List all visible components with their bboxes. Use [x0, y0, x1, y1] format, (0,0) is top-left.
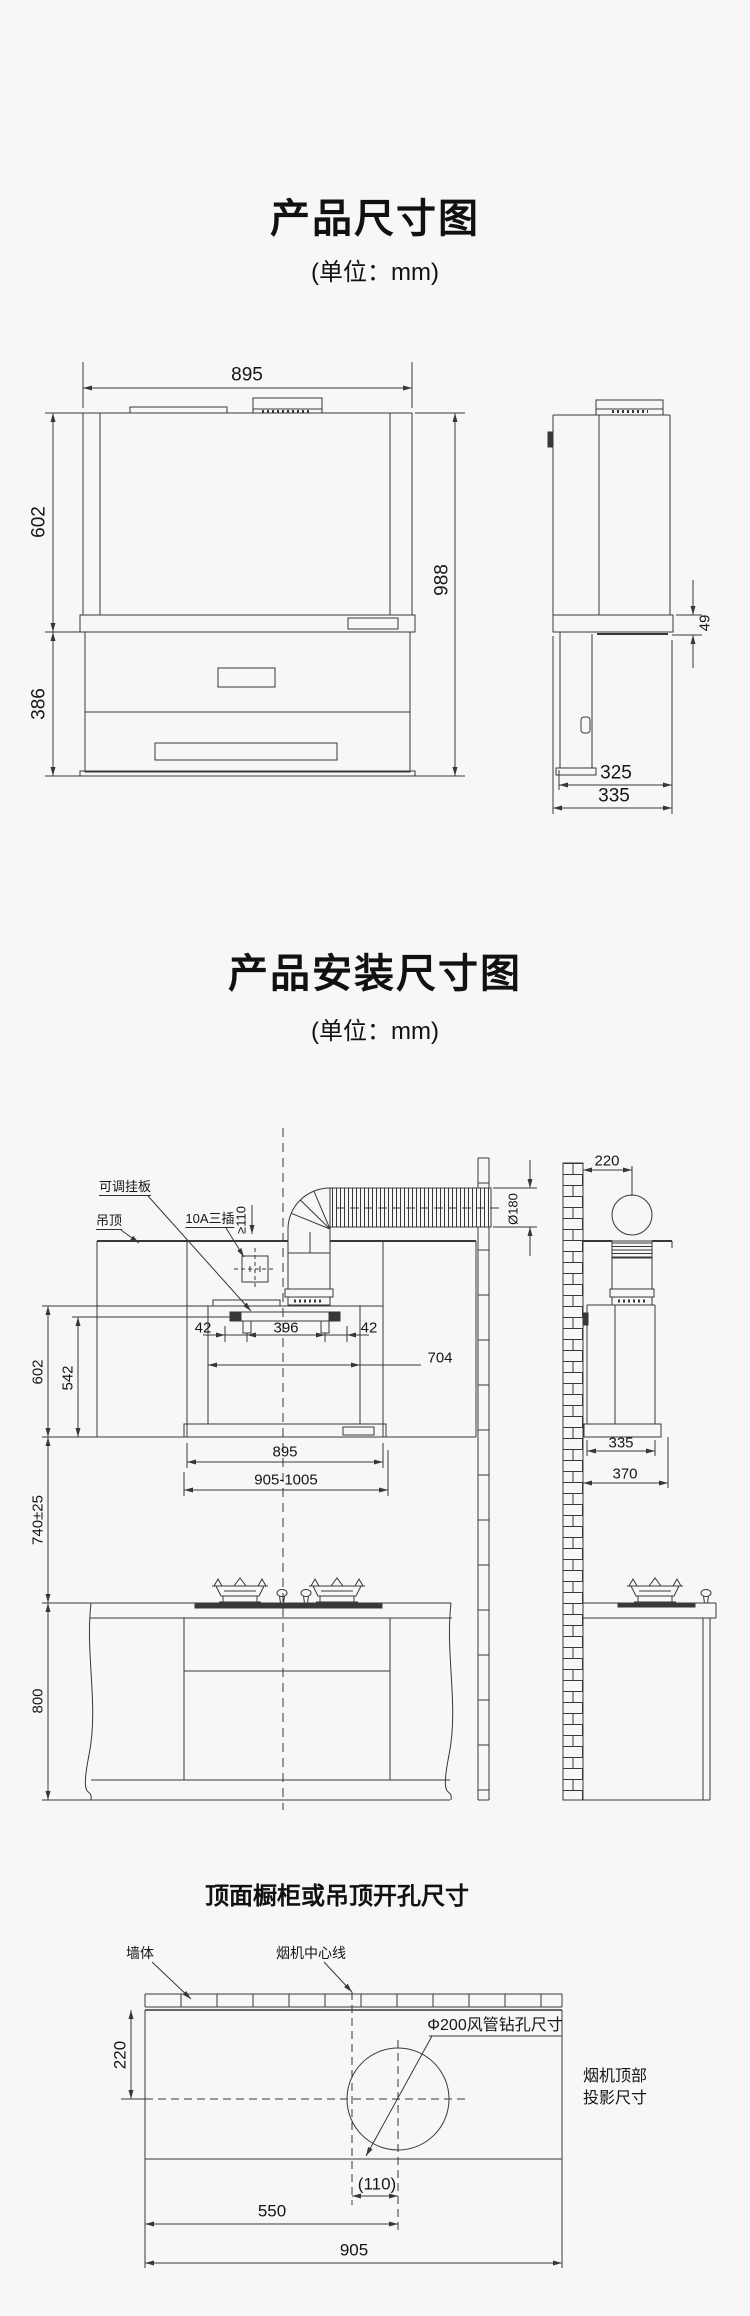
section1-title: 产品尺寸图 [0, 186, 750, 244]
dim-depth-335-install: 335 [608, 1436, 633, 1451]
dim-wall-front-370: 370 [612, 1467, 637, 1482]
s2-side-view [563, 1163, 716, 1800]
dim-wall-hole-220: 220 [112, 2041, 129, 2069]
dim-margin-right-42: 42 [361, 1321, 378, 1336]
dim-clearance-110: ≥110 [235, 1206, 248, 1234]
dim-span-396: 396 [273, 1321, 298, 1336]
section2-title: 产品安装尺寸图 [0, 941, 750, 999]
callout-adjustable-plate: 可调挂板 [99, 1180, 151, 1196]
dim-depth-325: 325 [600, 764, 632, 783]
dim-hood-height-602: 602 [30, 506, 49, 538]
s1-front-view [45, 362, 465, 776]
s2-front-view [42, 1128, 537, 1810]
section3-title: 顶面橱柜或吊顶开孔尺寸 [107, 1876, 567, 1911]
dim-offset-110: (110) [358, 2176, 396, 2193]
dim-plate-542: 542 [61, 1365, 76, 1390]
dim-margin-left-42: 42 [195, 1321, 212, 1336]
callout-drill-hole: Φ200风管钻孔尺寸 [427, 2018, 562, 2034]
dim-total-height-988: 988 [433, 564, 452, 596]
dim-duct-diameter-180: Ø180 [507, 1193, 520, 1225]
s1-side-view [548, 400, 702, 814]
callout-socket: 10A三插 [185, 1212, 234, 1228]
section1-unit: (单位：mm) [0, 252, 750, 287]
callout-ceiling: 吊顶 [96, 1214, 122, 1230]
callout-projection-line1: 烟机顶部 [583, 2066, 647, 2088]
dim-opening-905-1005: 905-1005 [254, 1473, 317, 1488]
technical-line-art [0, 0, 750, 2316]
dim-left-hole-550: 550 [258, 2203, 286, 2220]
callout-wall: 墙体 [126, 1946, 154, 1960]
dim-depth-335: 335 [598, 787, 630, 806]
product-dimension-sheet: 产品尺寸图 (单位：mm) 895 602 386 988 49 325 335… [0, 0, 750, 2316]
dim-hood-width-895-install: 895 [272, 1445, 297, 1460]
dim-hood-counter-740: 740±25 [31, 1495, 46, 1545]
dim-band-49: 49 [698, 615, 713, 632]
dim-hood-height-602-install: 602 [31, 1359, 46, 1384]
section2-unit: (单位：mm) [0, 1011, 750, 1046]
dim-counter-height-800: 800 [31, 1688, 46, 1713]
dim-wall-duct-220: 220 [594, 1154, 619, 1169]
s3-top-view [121, 1962, 562, 2268]
callout-projection-line2: 投影尺寸 [583, 2088, 647, 2110]
dim-total-905: 905 [340, 2242, 368, 2259]
dim-stove-height-386: 386 [30, 688, 49, 720]
dim-width-895: 895 [231, 366, 263, 385]
callout-hood-centerline: 烟机中心线 [276, 1946, 346, 1960]
dim-inner-width-704: 704 [427, 1351, 452, 1366]
callout-projection: 烟机顶部 投影尺寸 [583, 2066, 647, 2110]
